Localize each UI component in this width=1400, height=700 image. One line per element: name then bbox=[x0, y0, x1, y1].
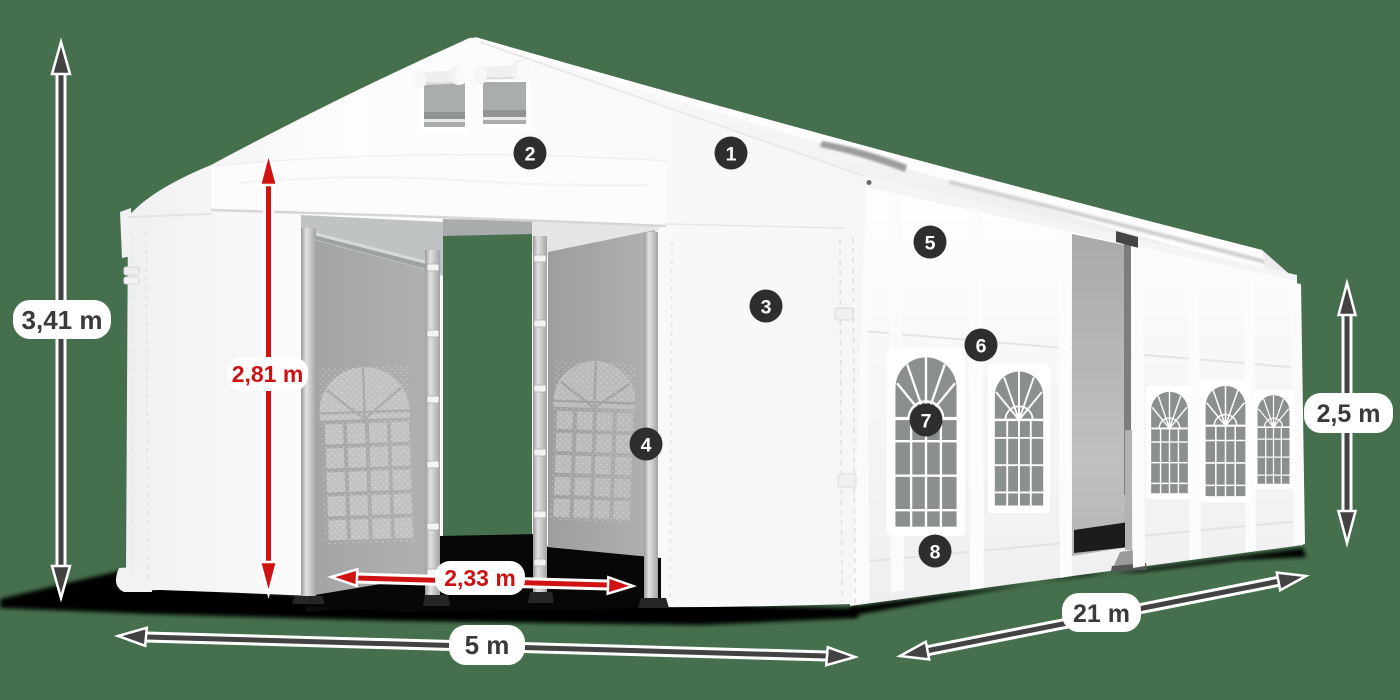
svg-text:2: 2 bbox=[525, 144, 536, 166]
svg-text:4: 4 bbox=[641, 435, 652, 457]
svg-text:2,33 m: 2,33 m bbox=[444, 565, 516, 591]
svg-text:6: 6 bbox=[976, 336, 987, 358]
svg-text:5: 5 bbox=[925, 233, 936, 255]
svg-text:8: 8 bbox=[930, 542, 941, 564]
svg-text:3: 3 bbox=[761, 297, 772, 319]
svg-text:2,81 m: 2,81 m bbox=[232, 361, 304, 387]
svg-text:5 m: 5 m bbox=[465, 630, 510, 660]
svg-text:2,5 m: 2,5 m bbox=[1317, 400, 1381, 428]
svg-text:21 m: 21 m bbox=[1073, 600, 1130, 628]
svg-text:7: 7 bbox=[921, 411, 932, 433]
svg-text:3,41 m: 3,41 m bbox=[22, 305, 103, 335]
svg-text:1: 1 bbox=[726, 144, 737, 166]
